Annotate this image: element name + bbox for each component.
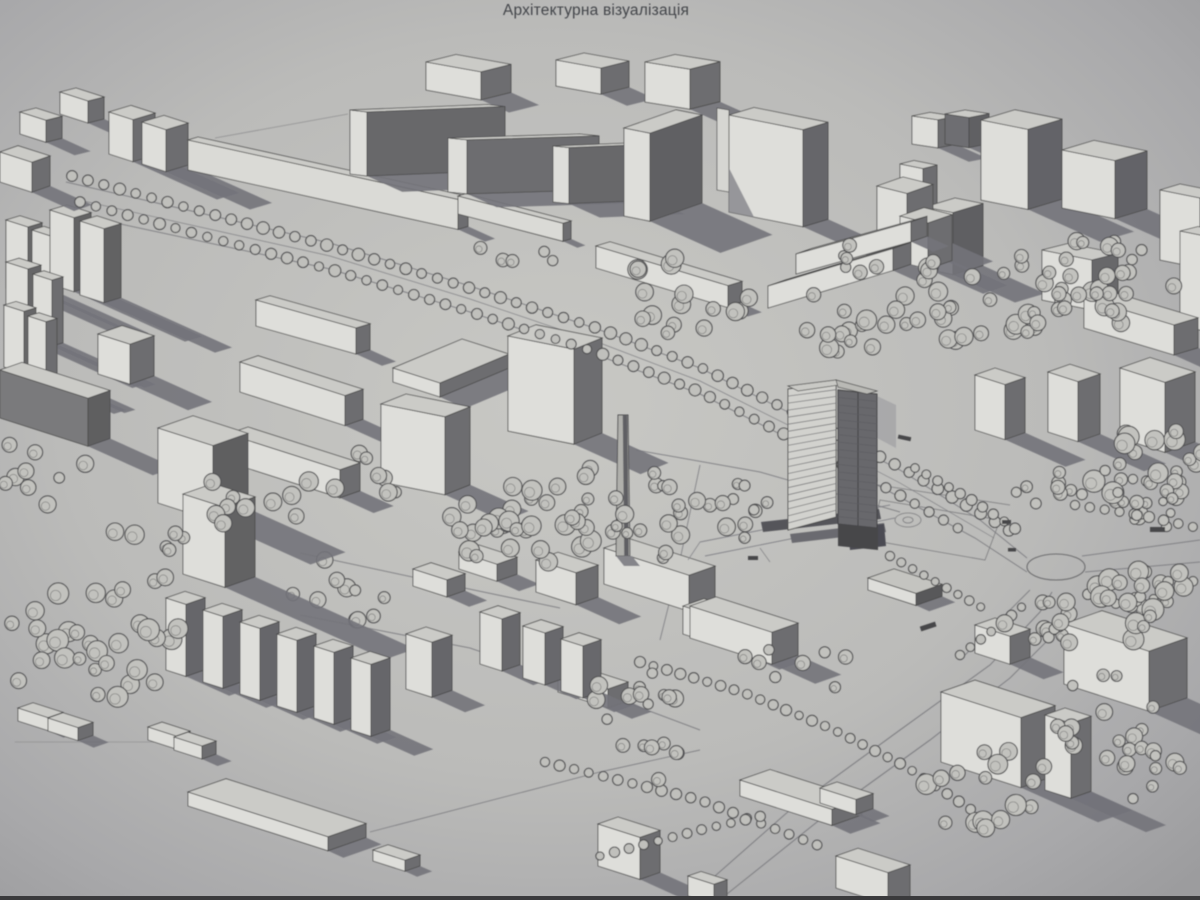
svg-text:Архітектурна візуалізація: Архітектурна візуалізація	[503, 2, 689, 19]
